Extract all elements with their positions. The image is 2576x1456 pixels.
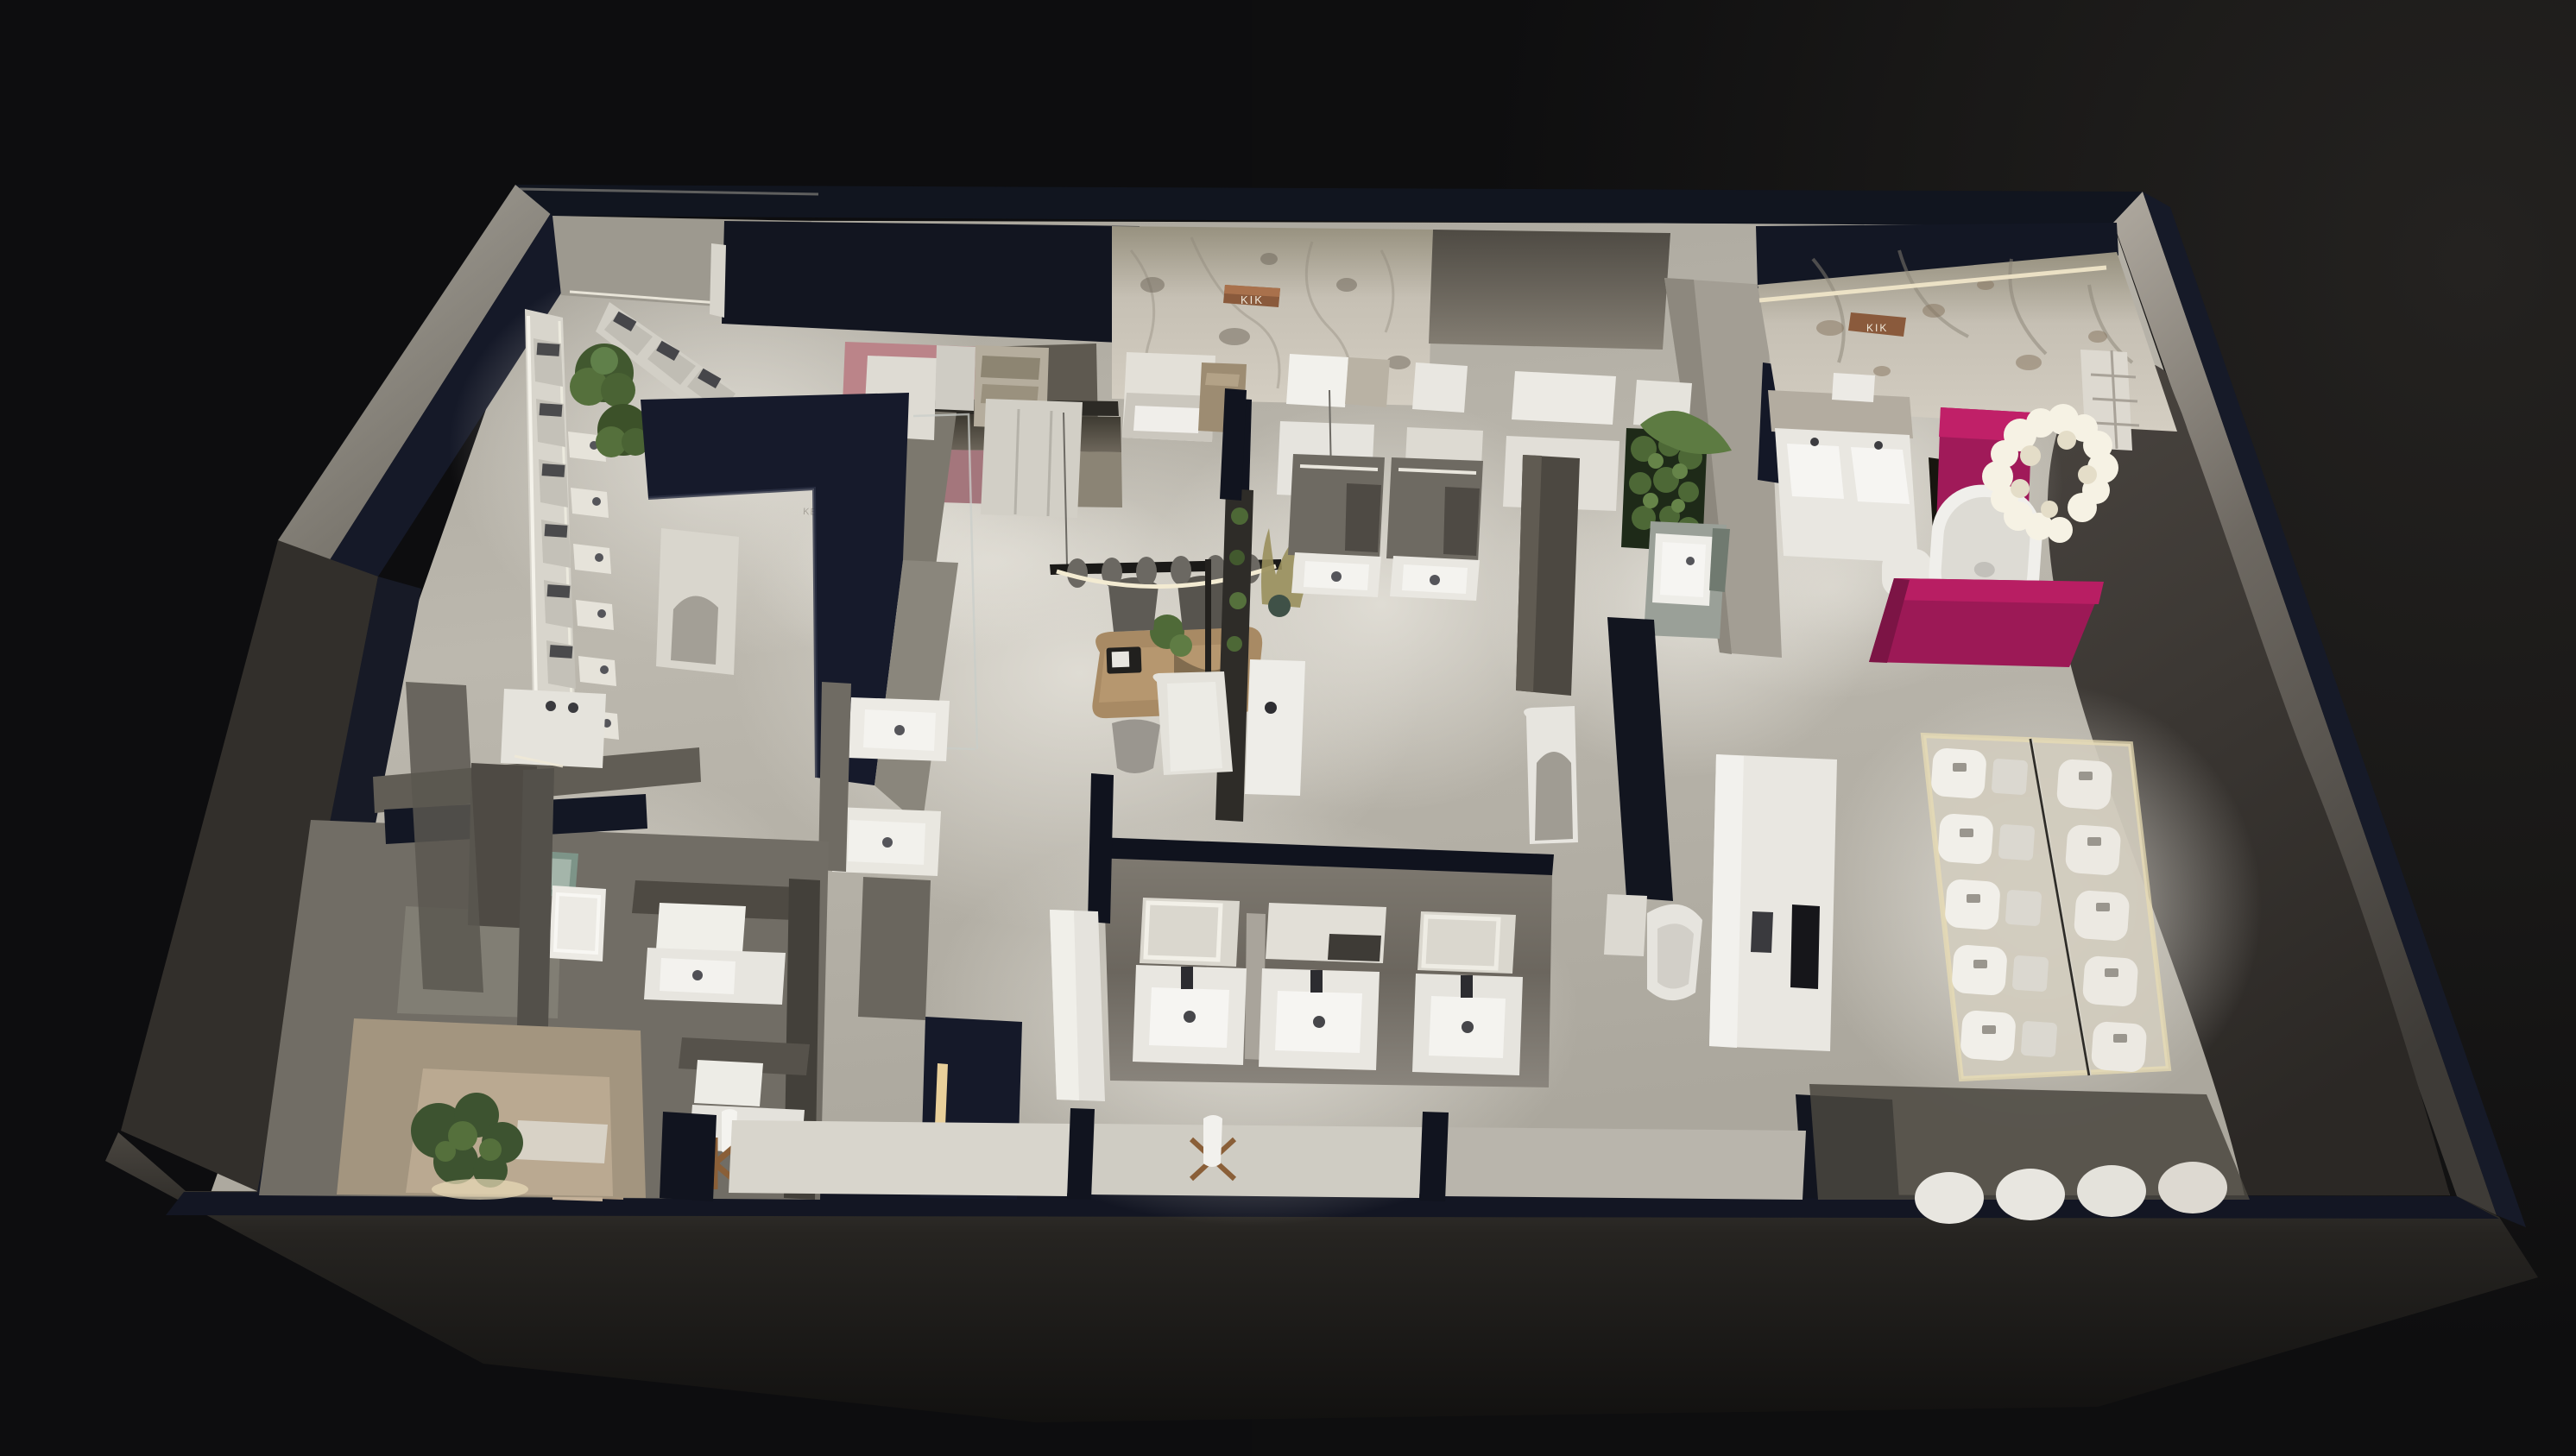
svg-text:KIK: KIK xyxy=(1241,293,1264,306)
svg-text:KIK: KIK xyxy=(1866,322,1888,334)
